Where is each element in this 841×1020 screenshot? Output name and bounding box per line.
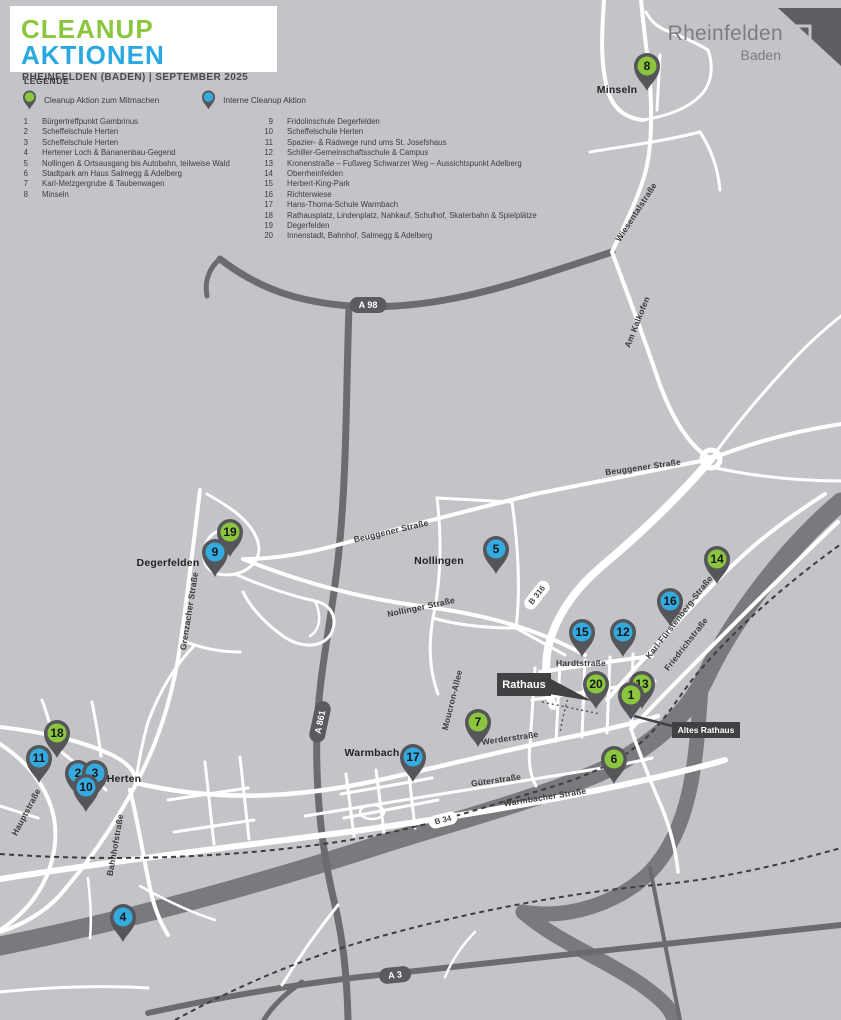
svg-text:5: 5 xyxy=(493,542,500,556)
cleanup-map-poster: WiesentalstraßeAm KalkofenBeuggener Stra… xyxy=(0,0,841,1020)
map-pin: 16 xyxy=(655,587,685,627)
location-row: 1 Bürgertreffpunkt Gambrinus xyxy=(8,117,248,127)
page-title: CLEANUP AKTIONEN xyxy=(21,16,277,68)
location-name: Fridolinschule Degerfelden xyxy=(287,117,380,126)
map-pin: 9 xyxy=(200,538,230,578)
location-row: 5 Nollingen & Ortsausgang bis Autobahn, … xyxy=(8,159,248,169)
map-pin: 6 xyxy=(599,745,629,785)
svg-text:11: 11 xyxy=(33,751,46,765)
location-number: 2 xyxy=(8,127,28,136)
location-row: 8 Minseln xyxy=(8,190,248,200)
map-pin: 15 xyxy=(567,618,597,658)
location-name: Nollingen & Ortsausgang bis Autobahn, te… xyxy=(42,159,230,168)
map-pin: 5 xyxy=(481,535,511,575)
svg-text:15: 15 xyxy=(575,625,589,639)
location-row: 12 Schiller-Gemeinschaftsschule & Campus xyxy=(253,148,553,158)
location-row: 3 Scheffelschule Herten xyxy=(8,138,248,148)
svg-text:17: 17 xyxy=(406,750,420,764)
legend-item-label: Cleanup Aktion zum Mitmachen xyxy=(44,96,159,105)
location-row: 14 Oberrheinfelden xyxy=(253,169,553,179)
location-name: Minseln xyxy=(42,190,69,199)
location-name: Hans-Thoma-Schule Warmbach xyxy=(287,200,398,209)
location-name: Scheffelschule Herten xyxy=(42,127,118,136)
svg-text:10: 10 xyxy=(79,780,93,794)
location-row: 2 Scheffelschule Herten xyxy=(8,127,248,137)
location-number: 8 xyxy=(8,190,28,199)
location-name: Oberrheinfelden xyxy=(287,169,343,178)
logo-triangle-icon xyxy=(771,0,841,70)
location-number: 17 xyxy=(253,200,273,209)
location-row: 9 Fridolinschule Degerfelden xyxy=(253,117,553,127)
svg-text:9: 9 xyxy=(212,545,219,559)
location-row: 15 Herbert-King-Park xyxy=(253,179,553,189)
location-name: Richterwiese xyxy=(287,190,332,199)
location-number: 3 xyxy=(8,138,28,147)
pin-icon: 4 xyxy=(108,903,138,943)
svg-text:20: 20 xyxy=(589,677,603,691)
pin-icon: 16 xyxy=(655,587,685,627)
location-row: 6 Stadtpark am Haus Salmegg & Adelberg xyxy=(8,169,248,179)
place-label: Nollingen xyxy=(414,555,464,567)
location-number: 20 xyxy=(253,231,273,240)
location-number: 5 xyxy=(8,159,28,168)
legend-item: Interne Cleanup Aktion xyxy=(201,90,306,110)
location-row: 19 Degerfelden xyxy=(253,221,553,231)
location-number: 7 xyxy=(8,179,28,188)
svg-text:18: 18 xyxy=(50,726,64,740)
pin-icon: 9 xyxy=(200,538,230,578)
pin-icon: 12 xyxy=(608,618,638,658)
location-row: 18 Rathausplatz, Lindenplatz, Nahkauf, S… xyxy=(253,211,553,221)
location-number: 12 xyxy=(253,148,273,157)
road-number-badge: A 98 xyxy=(350,297,387,313)
location-row: 17 Hans-Thoma-Schule Warmbach xyxy=(253,200,553,210)
pin-icon: 5 xyxy=(481,535,511,575)
street-label: Hardtstraße xyxy=(556,658,606,668)
map-pin: 1 xyxy=(616,681,646,721)
logo-sub: Baden xyxy=(668,47,781,63)
location-name: Scheffelschule Herten xyxy=(287,127,363,136)
map-pin: 7 xyxy=(463,708,493,748)
legend-items: Cleanup Aktion zum Mitmachen Interne Cle… xyxy=(22,90,306,110)
legend-pin-icon xyxy=(201,90,216,110)
location-row: 13 Kronenstraße – Fußweg Schwarzer Weg –… xyxy=(253,159,553,169)
location-name: Bürgertreffpunkt Gambrinus xyxy=(42,117,138,126)
location-row: 20 Innenstadt, Bahnhof, Salmegg & Adelbe… xyxy=(253,231,553,241)
legend-heading: LEGENDE xyxy=(24,76,69,86)
svg-text:7: 7 xyxy=(475,715,482,729)
svg-text:4: 4 xyxy=(120,910,127,924)
location-row: 11 Spazier- & Radwege rund ums St. Josef… xyxy=(253,138,553,148)
location-row: 7 Karl-Metzgergrube & Taubenwagen xyxy=(8,179,248,189)
location-number: 9 xyxy=(253,117,273,126)
svg-text:6: 6 xyxy=(611,752,618,766)
logo-name: Rheinfelden xyxy=(668,22,783,46)
location-name: Innenstadt, Bahnhof, Salmegg & Adelberg xyxy=(287,231,432,240)
map-pin: 11 xyxy=(24,744,54,784)
pin-icon: 11 xyxy=(24,744,54,784)
pin-icon: 14 xyxy=(702,545,732,585)
location-number: 14 xyxy=(253,169,273,178)
location-number: 10 xyxy=(253,127,273,136)
location-name: Hertener Loch & Bananenbau-Gegend xyxy=(42,148,176,157)
location-number: 6 xyxy=(8,169,28,178)
pin-icon: 1 xyxy=(616,681,646,721)
map-pin: 14 xyxy=(702,545,732,585)
location-row: 16 Richterwiese xyxy=(253,190,553,200)
location-list-right: 9 Fridolinschule Degerfelden 10 Scheffel… xyxy=(253,117,553,242)
svg-text:12: 12 xyxy=(616,625,630,639)
location-number: 18 xyxy=(253,211,273,220)
location-number: 13 xyxy=(253,159,273,168)
callout-box: Rathaus xyxy=(497,673,551,696)
map-pin: 17 xyxy=(398,743,428,783)
legend-pin-icon xyxy=(22,90,37,110)
location-name: Stadtpark am Haus Salmegg & Adelberg xyxy=(42,169,182,178)
location-name: Karl-Metzgergrube & Taubenwagen xyxy=(42,179,165,188)
pin-icon: 6 xyxy=(599,745,629,785)
location-name: Spazier- & Radwege rund ums St. Josefsha… xyxy=(287,138,446,147)
location-number: 1 xyxy=(8,117,28,126)
svg-text:14: 14 xyxy=(710,552,724,566)
location-list-left: 1 Bürgertreffpunkt Gambrinus 2 Scheffels… xyxy=(8,117,248,200)
map-pin: 12 xyxy=(608,618,638,658)
map-pin: 10 xyxy=(71,773,101,813)
pin-icon: 15 xyxy=(567,618,597,658)
location-name: Degerfelden xyxy=(287,221,329,230)
pin-icon: 10 xyxy=(71,773,101,813)
motorway-a3 xyxy=(148,925,841,1013)
svg-text:16: 16 xyxy=(663,594,677,608)
title-box: CLEANUP AKTIONEN RHEINFELDEN (BADEN) | S… xyxy=(10,6,277,72)
location-name: Herbert-King-Park xyxy=(287,179,350,188)
location-number: 4 xyxy=(8,148,28,157)
location-name: Scheffelschule Herten xyxy=(42,138,118,147)
map-pin: 4 xyxy=(108,903,138,943)
title-word-aktionen: AKTIONEN xyxy=(21,40,165,70)
legend-item-label: Interne Cleanup Aktion xyxy=(223,96,306,105)
rheinfelden-logo: Rheinfelden Baden xyxy=(641,0,841,80)
motorway-a98 xyxy=(220,252,612,307)
pin-icon: 7 xyxy=(463,708,493,748)
location-number: 19 xyxy=(253,221,273,230)
location-name: Schiller-Gemeinschaftsschule & Campus xyxy=(287,148,428,157)
location-number: 16 xyxy=(253,190,273,199)
place-label: Degerfelden xyxy=(137,557,200,569)
pin-icon: 17 xyxy=(398,743,428,783)
location-number: 11 xyxy=(253,138,273,147)
location-name: Kronenstraße – Fußweg Schwarzer Weg – Au… xyxy=(287,159,522,168)
callout-box: Altes Rathaus xyxy=(672,722,740,738)
map-pin: 20 xyxy=(581,670,611,710)
pin-icon: 20 xyxy=(581,670,611,710)
place-label: Warmbach xyxy=(345,747,400,759)
svg-text:1: 1 xyxy=(628,688,635,702)
location-number: 15 xyxy=(253,179,273,188)
location-row: 4 Hertener Loch & Bananenbau-Gegend xyxy=(8,148,248,158)
location-name: Rathausplatz, Lindenplatz, Nahkauf, Schu… xyxy=(287,211,537,220)
location-row: 10 Scheffelschule Herten xyxy=(253,127,553,137)
legend-item: Cleanup Aktion zum Mitmachen xyxy=(22,90,159,110)
place-label: Herten xyxy=(107,773,141,785)
